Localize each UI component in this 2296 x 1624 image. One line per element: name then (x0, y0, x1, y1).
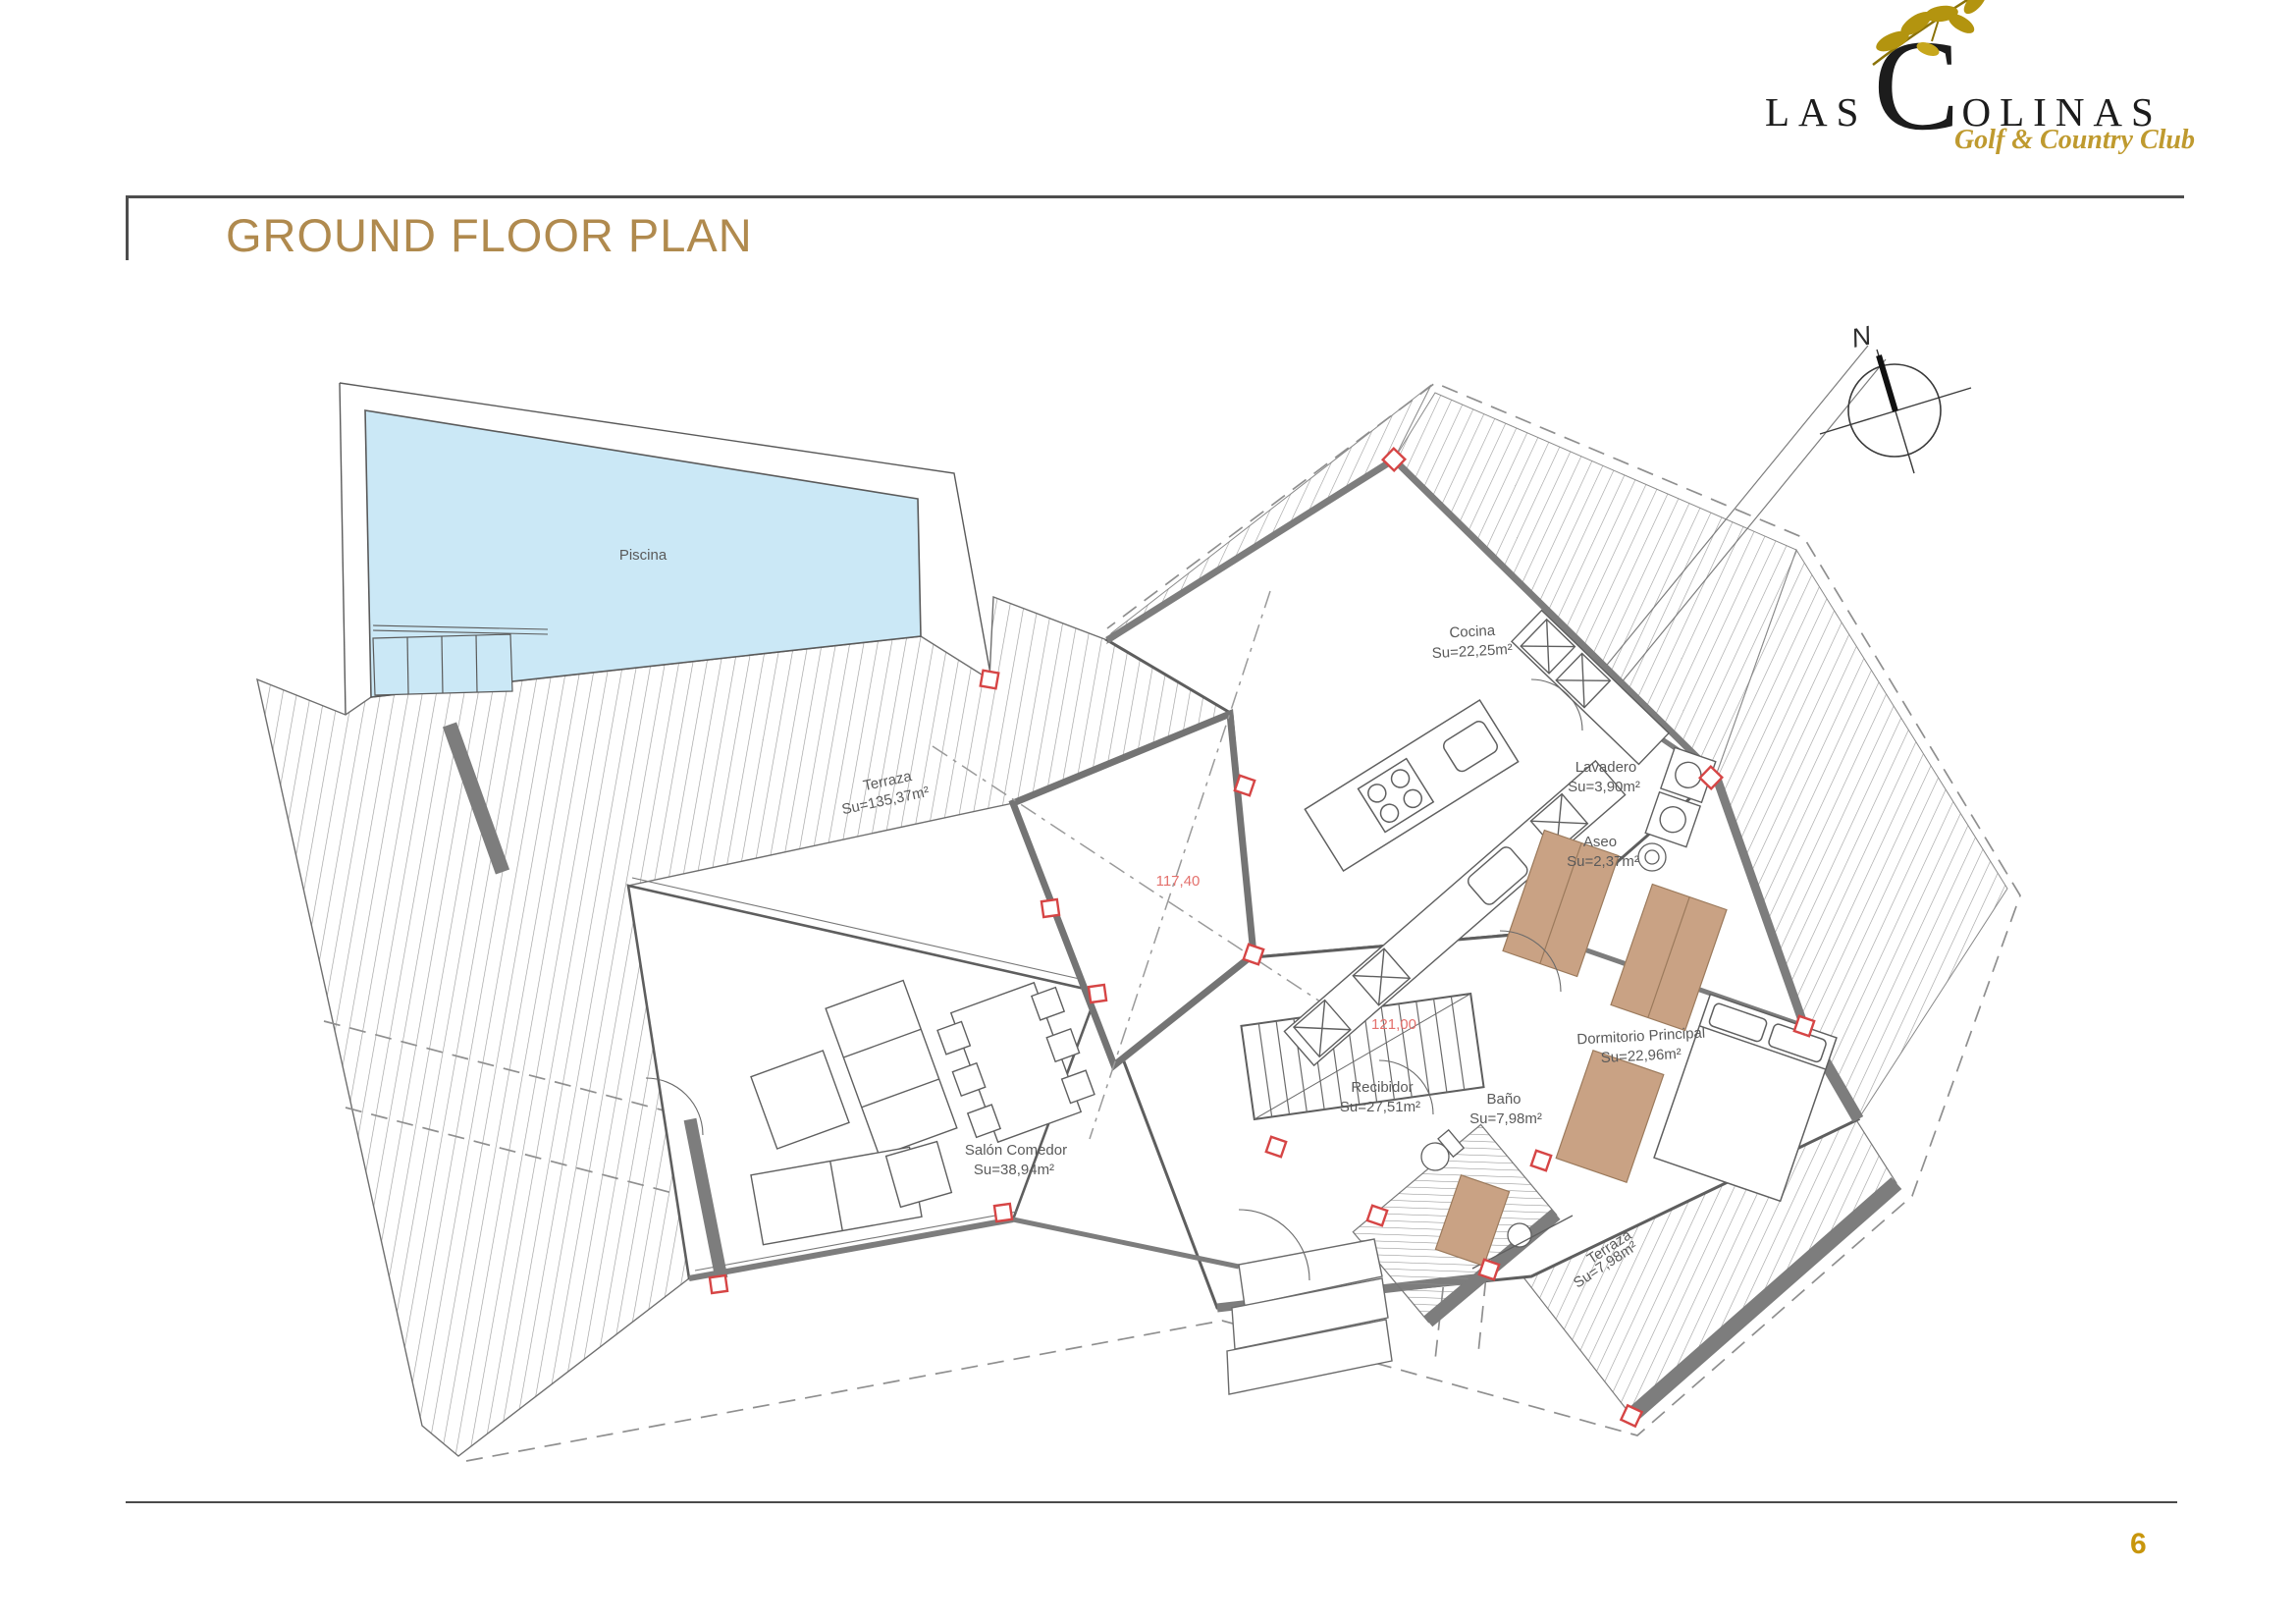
dimension-117: 117,40 (1156, 873, 1201, 890)
entry-steps (1227, 1239, 1392, 1394)
room-label-piscina: Piscina (619, 547, 667, 564)
floor-plan-svg: Piscina Terraza Su=135,37m² Cocina Su=22… (0, 0, 2296, 1624)
dimension-121: 121,00 (1371, 1016, 1416, 1033)
room-area-lavadero: Su=3,90m² (1568, 779, 1640, 795)
compass-north-label: N (1848, 320, 1874, 353)
room-label-recibidor: Recibidor (1351, 1079, 1413, 1096)
brochure-page: { "page": { "title": "GROUND FLOOR PLAN"… (0, 0, 2296, 1624)
room-area-bano: Su=7,98m² (1469, 1110, 1542, 1127)
room-area-aseo: Su=2,37m² (1567, 853, 1639, 870)
room-label-lavadero: Lavadero (1575, 759, 1637, 776)
room-label-salon: Salón Comedor (965, 1142, 1067, 1159)
room-label-bano: Baño (1486, 1091, 1521, 1108)
page-number: 6 (2130, 1528, 2147, 1561)
compass: N (1820, 320, 1971, 473)
room-area-salon: Su=38,94m² (974, 1162, 1054, 1178)
footer-rule (126, 1501, 2177, 1503)
pool-steps (373, 634, 512, 695)
room-label-aseo: Aseo (1583, 834, 1617, 850)
room-label-cocina: Cocina (1449, 623, 1496, 641)
room-area-recibidor: Su=27,51m² (1340, 1099, 1420, 1115)
